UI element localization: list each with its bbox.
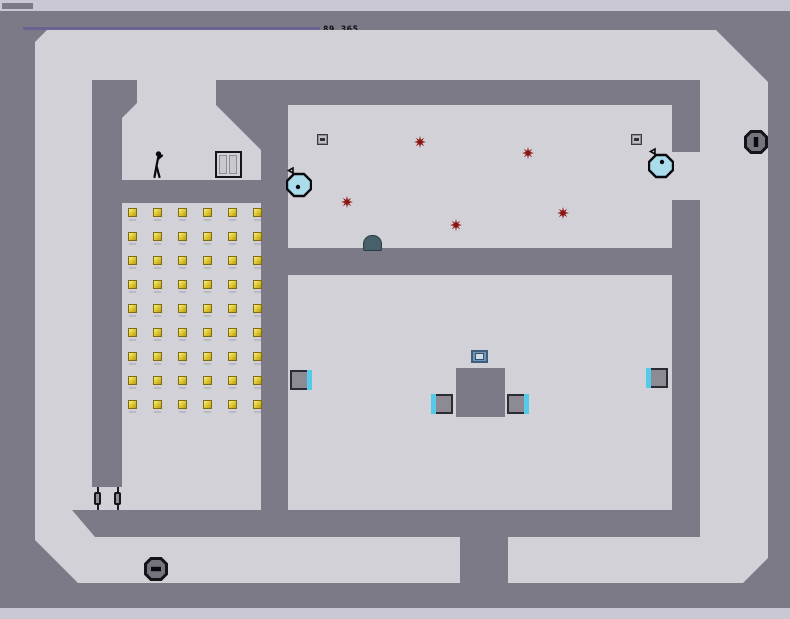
gold-piece [178,400,187,409]
gold-piece [153,256,162,265]
thwump-face [646,368,651,388]
gold-piece [178,208,187,217]
mine-hazard [450,219,462,231]
exit-door [215,151,242,178]
gold-piece [128,208,137,217]
gold-piece [253,328,262,337]
rocket-turret-enemy [144,557,168,585]
door-switch [631,134,642,145]
exit-door-panel-left [219,155,227,174]
gold-piece [128,232,137,241]
gold-piece [128,352,137,361]
gold-piece [203,376,212,385]
gold-piece [178,280,187,289]
switch-dash-icon [634,138,639,141]
gold-piece [253,208,262,217]
normal-door [94,487,103,510]
gold-piece [203,256,212,265]
gold-piece [153,304,162,313]
gold-piece [203,400,212,409]
gold-piece [153,280,162,289]
gold-piece [228,328,237,337]
gold-piece [128,400,137,409]
gold-piece [203,304,212,313]
gold-piece [128,256,137,265]
gold-piece [228,352,237,361]
gold-piece [203,208,212,217]
gold-piece [253,376,262,385]
mine-hazard [414,136,426,148]
gold-piece [178,232,187,241]
gold-piece [153,232,162,241]
switch-key-icon [476,354,483,359]
level-layer [0,0,790,619]
gold-piece [203,352,212,361]
thwump-enemy [648,368,668,388]
gold-piece [178,304,187,313]
gold-piece [228,232,237,241]
wall-center-pillar [456,368,505,417]
game-window: 89.365 8 ms/f Episode 40 Level 0: brinks [0,0,790,619]
gold-piece [253,280,262,289]
gold-piece [253,256,262,265]
gold-piece [203,328,212,337]
wall-ninja-room-floor [122,180,261,203]
wall-upper-ceiling [216,80,700,105]
gold-piece [128,280,137,289]
gold-piece [228,208,237,217]
gold-piece [253,352,262,361]
gold-piece [128,328,137,337]
wall-mid-band [261,248,700,275]
gold-piece [253,232,262,241]
gold-piece [153,208,162,217]
gold-piece [253,400,262,409]
door-block [94,492,101,505]
wall-right-upper [672,82,700,152]
thwump-enemy [507,394,527,414]
ninja-character [150,150,166,186]
gold-piece [178,328,187,337]
gold-piece [228,280,237,289]
gold-piece [153,400,162,409]
gold-piece [253,304,262,313]
gold-piece [153,376,162,385]
wall-right-lower [672,200,700,510]
locked-door-switch [471,350,488,363]
status-band: 8 ms/f Episode 40 Level 0: brinks [0,583,790,608]
thwump-enemy [433,394,453,414]
thwump-face [431,394,436,414]
drone-enemy [648,147,674,183]
gold-piece [228,256,237,265]
gold-piece [128,376,137,385]
thwump-face [307,370,312,390]
gold-piece [153,352,162,361]
gold-piece [228,400,237,409]
door-block [114,492,121,505]
thwump-face [524,394,529,414]
gold-piece [228,376,237,385]
thwump-enemy [290,370,310,390]
normal-door [114,487,123,510]
mine-hazard [522,147,534,159]
gold-piece [178,376,187,385]
gold-piece [228,304,237,313]
drone-enemy [286,166,312,202]
gold-piece [128,304,137,313]
wall-bottom-connector [460,537,508,583]
gauss-turret-enemy [363,235,382,251]
gold-piece [178,256,187,265]
mine-hazard [341,196,353,208]
gold-piece [203,232,212,241]
bottom-strip [0,608,790,619]
rocket-turret-enemy [744,130,768,158]
gold-piece [153,328,162,337]
gold-piece [203,280,212,289]
door-switch [317,134,328,145]
wall-floor-band [72,510,700,537]
switch-dash-icon [320,138,325,141]
gold-piece [178,352,187,361]
mine-hazard [557,207,569,219]
exit-door-panel-right [229,155,237,174]
